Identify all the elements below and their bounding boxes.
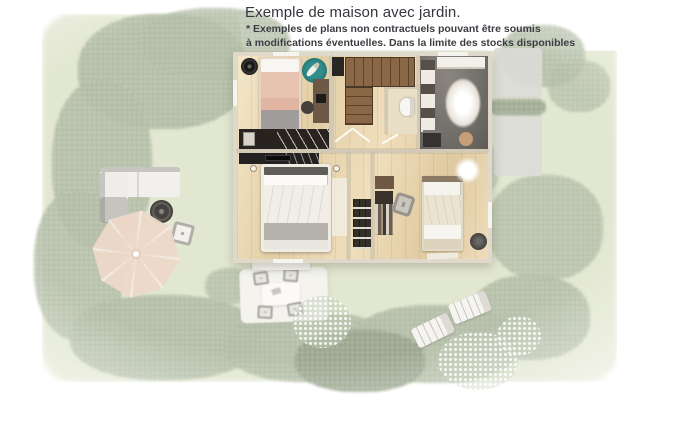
hall-cabinet <box>332 57 344 76</box>
disclaimer-line-1: * Exemples de plans non contractuels pou… <box>246 23 541 35</box>
disclaimer-line-2: à modifications éventuelles. Dans la lim… <box>246 37 575 49</box>
bedside-lamp <box>333 165 340 172</box>
monitor <box>316 94 326 103</box>
side-rug <box>332 178 347 236</box>
folded-blanket <box>424 225 461 239</box>
desk-chair <box>301 101 314 114</box>
bathroom-shelf <box>437 57 485 69</box>
foliage-cluster <box>488 175 603 280</box>
throw-blanket <box>261 110 299 130</box>
tree-canopy <box>548 60 610 112</box>
flower-bush <box>497 316 541 356</box>
foot-bench <box>264 240 328 249</box>
driveway-slab <box>494 48 542 98</box>
interior-wall <box>347 153 350 259</box>
desk <box>375 176 394 189</box>
flower-bush <box>293 296 351 348</box>
floor-speaker <box>241 58 258 75</box>
window <box>233 80 237 106</box>
throw-blanket <box>264 223 328 240</box>
table-item <box>271 287 281 295</box>
toilet <box>400 98 414 116</box>
bathroom-pouf <box>459 132 473 146</box>
dresser <box>243 132 255 146</box>
window <box>273 52 299 56</box>
window <box>273 259 303 263</box>
interior-wall <box>371 153 374 259</box>
single-bed <box>259 57 301 134</box>
staircase <box>345 57 415 87</box>
bedding <box>261 98 299 110</box>
duvet <box>424 195 461 225</box>
bedside-lamp <box>250 165 257 172</box>
patio-chair <box>283 268 299 282</box>
page-title: Exemple de maison avec jardin. <box>245 4 461 21</box>
staircase <box>345 87 373 125</box>
hedge <box>489 99 546 115</box>
bathroom-vanity <box>421 60 435 132</box>
tv <box>265 155 291 161</box>
master-bed <box>261 164 331 252</box>
house-floor-plan <box>233 52 492 263</box>
parasol-pole <box>133 251 139 257</box>
open-wardrobe <box>375 191 393 235</box>
double-bed <box>422 176 463 251</box>
patio-chair <box>253 271 270 286</box>
promo-image: Exemple de maison avec jardin. * Exemple… <box>0 0 680 425</box>
pillow <box>261 59 299 72</box>
patio-chair <box>257 305 273 319</box>
duvet <box>264 185 328 223</box>
pillow-row <box>264 175 328 185</box>
pouf <box>470 233 487 250</box>
bench <box>427 252 458 259</box>
bathtub <box>445 78 481 128</box>
window <box>488 202 492 228</box>
pillow-row <box>424 182 461 195</box>
bedding <box>261 72 299 98</box>
sink-counter <box>423 130 441 147</box>
driveway-slab <box>494 114 542 176</box>
window <box>438 52 468 56</box>
pillow-row <box>264 167 328 175</box>
shelving-unit <box>353 199 371 249</box>
bed-foot <box>424 239 461 249</box>
